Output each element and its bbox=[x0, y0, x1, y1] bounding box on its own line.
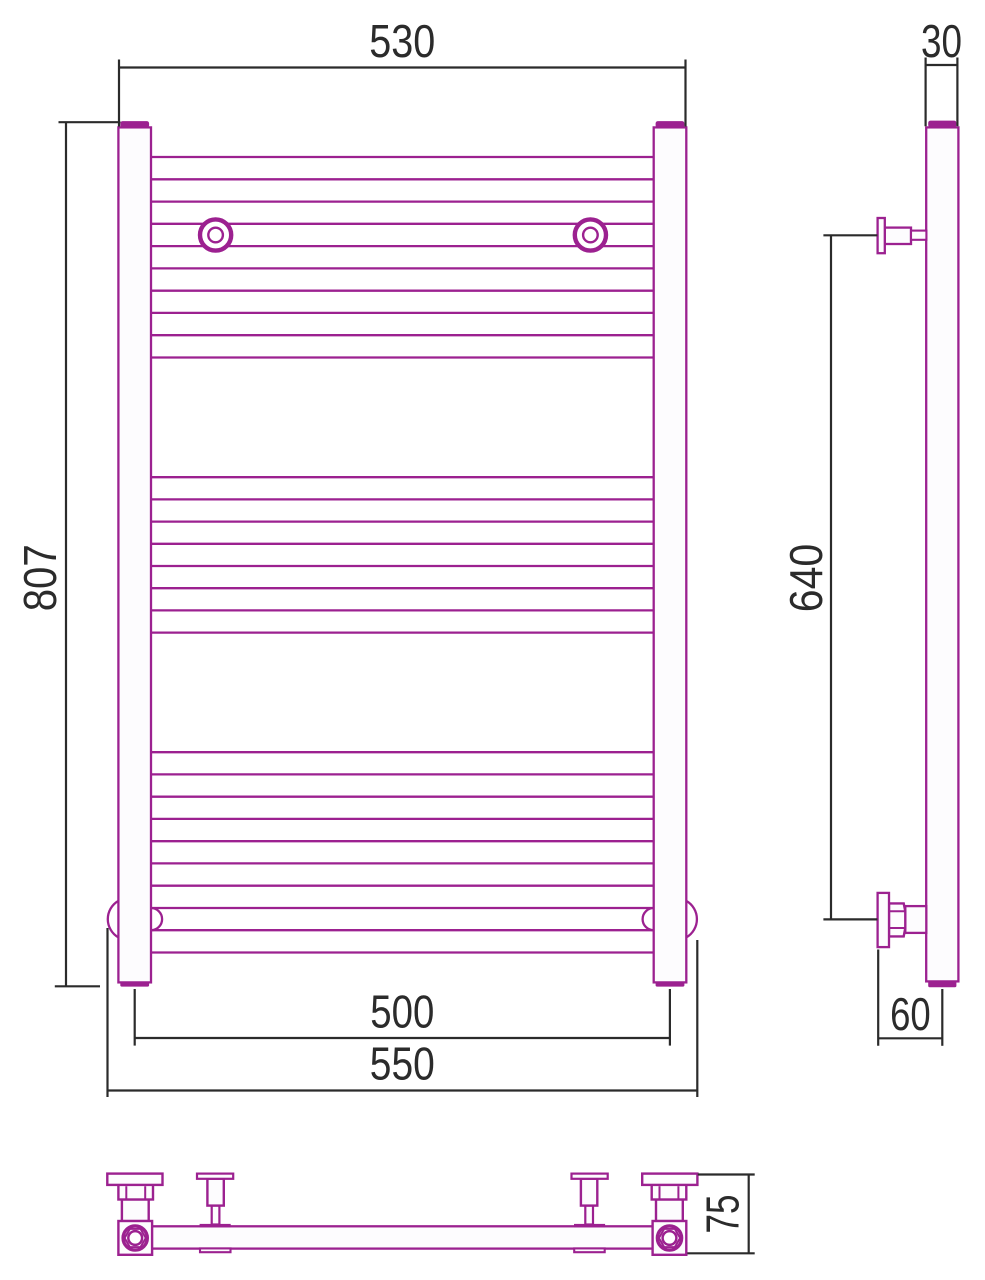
svg-text:60: 60 bbox=[890, 988, 931, 1040]
svg-text:30: 30 bbox=[921, 15, 962, 67]
svg-text:500: 500 bbox=[370, 986, 434, 1038]
svg-text:807: 807 bbox=[14, 544, 66, 611]
svg-text:640: 640 bbox=[780, 544, 832, 613]
svg-text:75: 75 bbox=[697, 1195, 749, 1234]
svg-text:530: 530 bbox=[369, 15, 435, 67]
svg-text:550: 550 bbox=[370, 1037, 435, 1089]
